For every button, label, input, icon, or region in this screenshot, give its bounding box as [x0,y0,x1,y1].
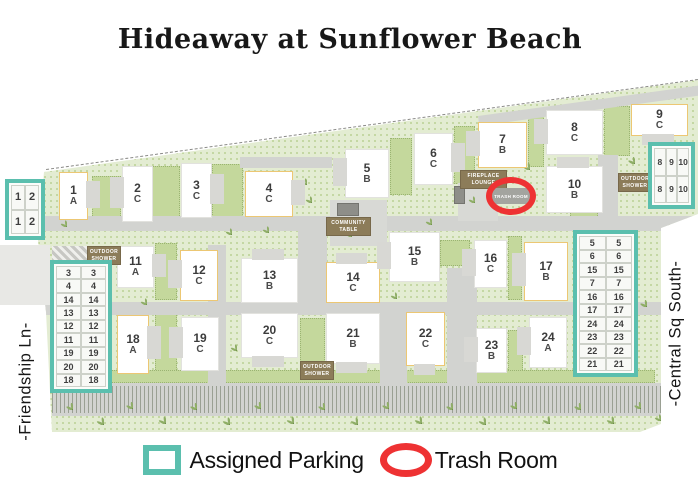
parking-space: 20 [81,360,106,373]
building-6C: 6C [414,133,453,185]
palm-tree-icon [621,150,635,164]
palm-tree-icon [375,395,389,409]
parking-space: 24 [579,317,606,331]
parking-space: 21 [579,358,606,372]
palm-tree-icon [279,409,294,424]
parking-space: 20 [56,360,81,373]
amenity-label-line: OUTDOOR [620,176,650,183]
parking-space: 9 [666,176,678,204]
building-number: 18 [126,333,139,346]
parking-space: 9 [666,148,678,176]
parking-space: 14 [56,293,81,306]
amenity-community-table: COMMUNITYTABLE [326,217,371,236]
building-letter: C [571,134,578,145]
parking-space: 6 [606,250,633,264]
building-wing [464,337,478,362]
building-letter: C [487,265,494,276]
building-3C: 3C [181,163,212,218]
amenity-label-line: SHOWER [302,371,332,378]
building-letter: A [129,346,136,357]
parking-space: 16 [579,290,606,304]
building-letter: B [499,146,506,157]
building-letter: B [542,273,549,284]
palm-tree-icon [59,396,73,410]
parking-space: 5 [606,236,633,250]
building-12C: 12C [180,250,218,301]
parking-space: 10 [677,148,689,176]
palm-tree-icon [384,286,397,299]
building-14C: 14C [326,262,380,303]
building-wing [466,131,480,157]
parking-space: 10 [677,176,689,204]
building-wing [534,119,548,144]
building-4C: 4C [245,171,293,217]
building-wing [517,327,531,355]
building-number: 20 [263,324,276,337]
building-wing [210,174,224,205]
building-number: 24 [541,331,554,344]
building-9C: 9C [631,104,688,136]
building-letter: C [430,160,437,171]
parking-space: 17 [579,304,606,318]
building-letter: C [195,277,202,288]
building-18A: 18A [117,315,149,374]
parking-space: 19 [56,347,81,360]
building-letter: C [349,284,356,295]
building-number: 3 [193,179,200,192]
building-letter: C [656,121,663,132]
building-wing [377,242,391,270]
building-letter: B [411,258,418,269]
building-wing [336,253,366,264]
parking-space: 18 [81,374,106,387]
building-wing [110,177,124,208]
building-wing [557,157,589,168]
parking-space: 5 [579,236,606,250]
building-letter: C [265,195,272,206]
building-wing [512,253,526,286]
building-10B: 10B [546,166,603,213]
building-wing [451,143,465,172]
building-wing [252,356,284,367]
building-wing [147,326,161,359]
parking-space: 23 [606,331,633,345]
palm-tree-icon [648,408,661,421]
building-letter: A [544,344,551,355]
building-wing [252,249,284,260]
building-number: 8 [571,121,578,134]
legend-trash-label: Trash Room [435,447,558,474]
parking-space: 16 [606,290,633,304]
building-letter: C [196,345,203,356]
trash-room-swatch [380,443,432,477]
garden-patch [604,106,630,156]
building-21B: 21B [326,313,380,364]
building-wing [169,327,183,357]
palm-tree-icon [627,395,641,409]
building-19C: 19C [181,317,219,371]
building-wing [414,364,435,375]
building-wing [333,158,347,185]
building-8C: 8C [546,110,603,155]
parking-space: 1 [11,210,25,235]
palm-tree-icon [407,409,422,424]
building-11A: 11A [117,246,154,288]
building-15B: 15B [389,232,440,282]
palm-tree-icon [343,410,358,425]
parking-space: 23 [579,331,606,345]
palm-tree-icon [439,396,453,410]
road [298,227,327,307]
palm-tree-icon [567,396,581,410]
building-letter: B [363,175,370,186]
road [447,268,477,385]
building-number: 17 [539,260,552,273]
building-number: 13 [263,269,276,282]
palm-tree-icon [219,222,232,235]
parking-space: 2 [25,210,39,235]
building-number: 23 [485,339,498,352]
building-wing [462,249,476,276]
amenity-label-line: OUTDOOR [302,364,332,371]
assigned-parking-swatch [143,445,181,475]
building-wing [291,180,305,206]
building-17B: 17B [524,242,568,301]
parking-space: 11 [81,333,106,346]
parking-space: 7 [579,277,606,291]
garden-patch [390,138,412,195]
building-13B: 13B [241,258,298,303]
building-20C: 20C [241,313,298,358]
furniture [337,203,359,216]
road [240,157,332,168]
building-letter: A [70,197,77,208]
palm-tree-icon [151,409,166,424]
palm-tree-icon [256,220,269,233]
palm-tree-icon [599,409,614,424]
parking-grid-west: 33441414131312121111191920201818 [50,260,112,393]
amenity-outdoor-shower-s: OUTDOORSHOWER [300,361,334,380]
building-letter: C [422,340,429,351]
building-wing [152,254,166,277]
palm-tree-icon [183,396,197,410]
building-24A: 24A [529,317,567,368]
palm-tree-icon [419,212,432,225]
parking-space: 3 [81,266,106,279]
parking-space: 4 [56,279,81,292]
building-letter: A [132,268,139,279]
building-letter: C [193,192,200,203]
street-central-sq-south: -Central Sq South- [667,249,686,419]
palm-tree-icon [247,395,261,409]
palm-tree-icon [503,395,517,409]
parking-space: 17 [606,304,633,318]
building-number: 12 [192,264,205,277]
building-number: 14 [346,271,359,284]
parking-space: 24 [606,317,633,331]
parking-space: 13 [56,306,81,319]
building-letter: C [266,337,273,348]
amenity-outdoor-shower-ne: OUTDOORSHOWER [618,173,652,192]
legend-parking-label: Assigned Parking [190,447,364,474]
palm-tree-icon [471,410,486,425]
parking-space: 8 [654,148,666,176]
building-letter: B [488,352,495,363]
amenity-label-line: SHOWER [620,183,650,190]
building-letter: C [134,195,141,206]
parking-space: 12 [81,320,106,333]
building-wing [336,362,366,373]
building-2C: 2C [122,166,153,222]
palm-tree-icon [89,410,104,425]
building-letter: B [571,191,578,202]
parking-grid-northeast: 89108910 [648,142,695,209]
parking-space: 15 [579,263,606,277]
parking-space: 8 [654,176,666,204]
parking-space: 3 [56,266,81,279]
palm-tree-icon [215,410,230,425]
building-23B: 23B [476,328,507,373]
parking-grid-east: 5566151577161617172424232322222121 [573,230,638,377]
building-wing [86,181,100,208]
site-map: TRASH ROOM -Friendship Ln- -Central Sq S… [0,0,700,495]
parking-space: 1 [11,185,25,210]
street-friendship-ln: -Friendship Ln- [17,297,36,467]
parking-space: 11 [56,333,81,346]
parking-grid-northwest: 1212 [5,179,45,240]
amenity-label-line: TABLE [328,227,369,234]
parking-space: 4 [81,279,106,292]
palm-tree-icon [119,395,133,409]
building-22C: 22C [406,312,445,366]
parking-space: 12 [56,320,81,333]
trash-room-circle [486,177,536,215]
building-5B: 5B [345,149,389,198]
amenity-label-line: OUTDOOR [89,249,119,256]
palm-tree-icon [535,409,550,424]
parking-space: 22 [579,344,606,358]
palm-tree-icon [134,292,147,305]
building-16C: 16C [474,240,507,288]
building-letter: B [266,282,273,293]
palm-tree-icon [224,338,237,351]
building-number: 21 [346,327,359,340]
garden-patch [152,166,180,220]
building-wing [168,260,182,288]
parking-space: 2 [25,185,39,210]
road [380,313,407,385]
parking-space: 15 [606,263,633,277]
amenity-label-line: COMMUNITY [328,220,369,227]
parking-space: 22 [606,344,633,358]
building-1A: 1A [59,172,88,220]
building-7B: 7B [478,122,527,168]
building-letter: B [349,340,356,351]
parking-space: 21 [606,358,633,372]
parking-space: 13 [81,306,106,319]
parking-space: 6 [579,250,606,264]
parking-space: 7 [606,277,633,291]
parking-space: 14 [81,293,106,306]
palm-tree-icon [311,396,325,410]
building-number: 10 [568,178,581,191]
palm-tree-icon [462,190,475,203]
building-number: 5 [364,162,371,175]
legend: Assigned Parking Trash Room [0,443,700,477]
parking-space: 18 [56,374,81,387]
parking-space: 19 [81,347,106,360]
